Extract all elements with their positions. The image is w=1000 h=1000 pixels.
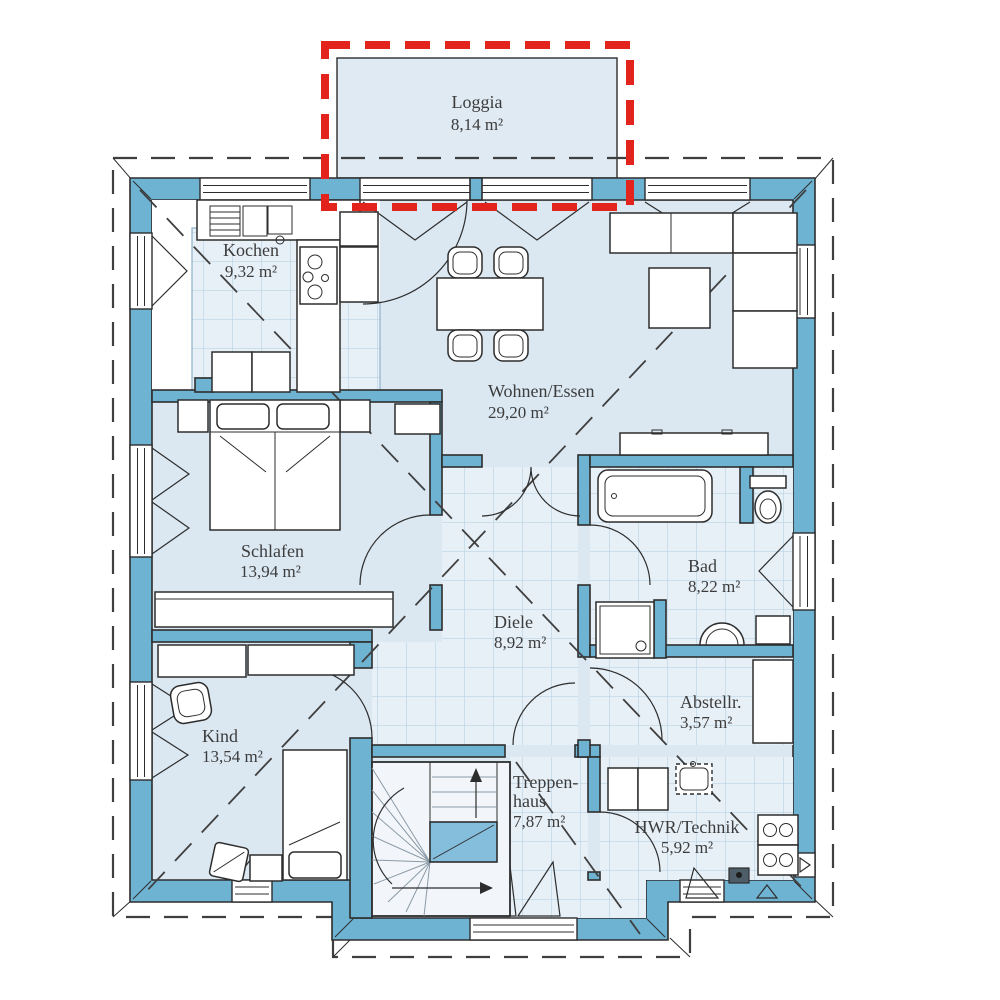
svg-text:Abstellr.: Abstellr.	[680, 692, 742, 712]
svg-text:haus: haus	[513, 791, 546, 811]
svg-text:3,57 m²: 3,57 m²	[680, 713, 732, 732]
svg-text:29,20 m²: 29,20 m²	[488, 403, 549, 422]
svg-text:Bad: Bad	[688, 556, 717, 576]
svg-text:Wohnen/Essen: Wohnen/Essen	[488, 381, 595, 401]
svg-text:Kochen: Kochen	[223, 240, 279, 260]
svg-text:9,32 m²: 9,32 m²	[225, 262, 277, 281]
storage-shelf	[753, 660, 793, 743]
floor-plan-page: Loggia 8,14 m² Kochen 9,32 m² Wohnen/Ess…	[0, 0, 1000, 1000]
svg-text:Kind: Kind	[202, 726, 238, 746]
svg-text:7,87 m²: 7,87 m²	[513, 812, 565, 831]
svg-text:Diele: Diele	[494, 612, 533, 632]
svg-text:13,94 m²: 13,94 m²	[240, 562, 301, 581]
svg-text:8,22 m²: 8,22 m²	[688, 577, 740, 596]
svg-text:8,14 m²: 8,14 m²	[451, 115, 503, 134]
svg-text:5,92 m²: 5,92 m²	[661, 838, 713, 857]
floor-plan-drawing: Loggia 8,14 m² Kochen 9,32 m² Wohnen/Ess…	[0, 0, 1000, 1000]
svg-text:8,92 m²: 8,92 m²	[494, 633, 546, 652]
svg-text:Schlafen: Schlafen	[241, 541, 304, 561]
svg-text:HWR/Technik: HWR/Technik	[635, 817, 740, 837]
svg-text:Treppen-: Treppen-	[513, 772, 578, 792]
staircase	[372, 762, 510, 916]
svg-text:13,54 m²: 13,54 m²	[202, 747, 263, 766]
svg-text:Loggia: Loggia	[452, 92, 503, 112]
